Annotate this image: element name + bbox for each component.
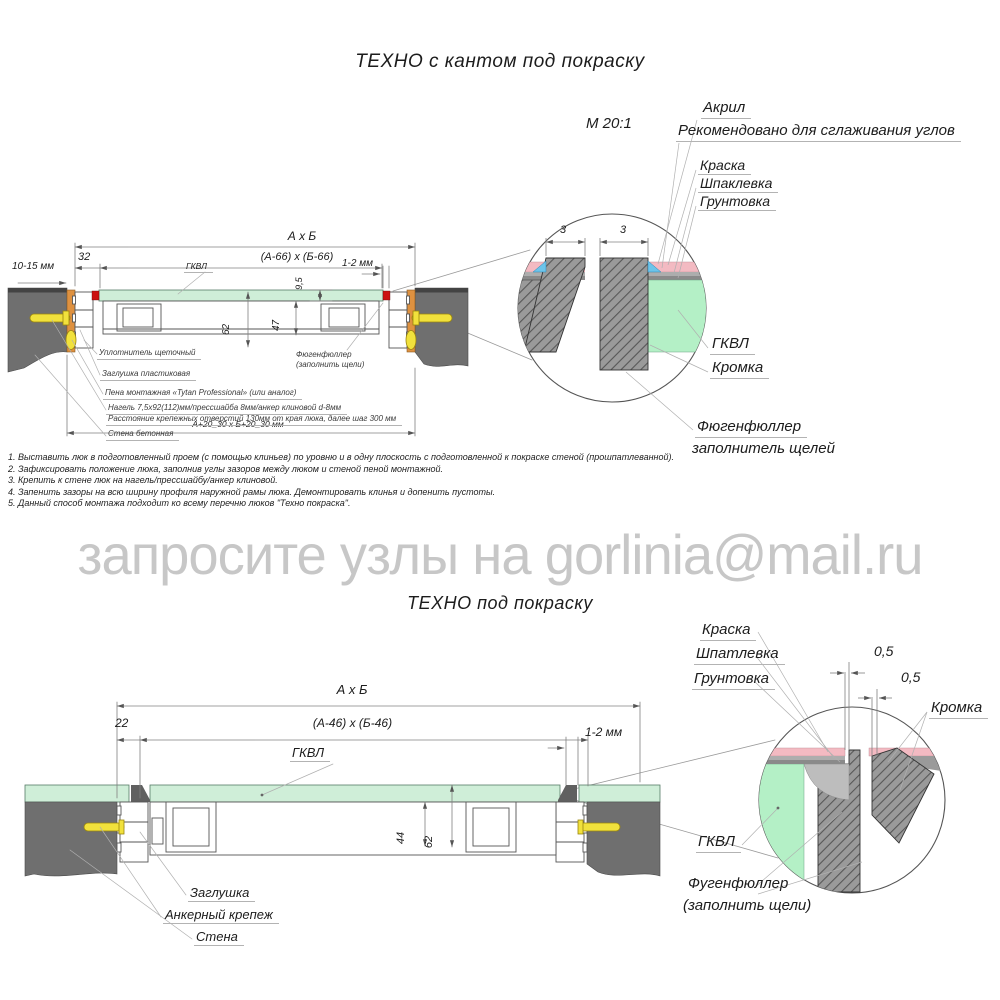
top-red-mark-left [92,291,99,300]
label-filler1-line1: Фюгенфюллер [695,419,807,438]
label-filler2-line1: Фугенфюллер [688,876,788,893]
dim-bottom-frame-h: 62 [423,836,435,848]
label-acrylic-note: Рекомендовано для сглаживания углов [676,123,961,142]
gkvl-leader-dot [261,794,264,797]
bottom-wall-left [25,802,117,876]
callout-filler-top-line1: Фюгенфюллер [296,351,352,360]
dim-top-inner: (А-66) х (Б-66) [237,251,357,263]
bottom-section-title: ТЕХНО под покраску [0,594,1000,614]
top-lid [103,301,379,334]
dim-top-slit: 1-2 мм [342,258,373,269]
dim-top-lid-h: 47 [271,320,282,331]
dim-bottom-inner: (А-46) х (Б-46) [285,717,420,730]
dim-top-frame-h: 62 [221,324,232,335]
detail1-scale-label: М 20:1 [586,116,632,133]
detail2-gkvl-green [758,764,804,890]
dim-detail2-gap1: 0,5 [874,644,893,659]
label-wall-bottom: Стена [194,930,244,946]
dim-top-overall: А х Б [252,230,352,243]
dim-bottom-lid-h: 44 [395,832,407,844]
label-acrylic: Акрил [701,100,751,119]
label-primer-top: Грунтовка [698,194,776,211]
callout-wall-top: Стена бетонная [106,430,179,441]
dim-top-panel-t: 9,5 [295,277,305,290]
label-putty-top: Шпаклевка [698,176,778,193]
label-gkvl-detail1: ГКВЛ [710,336,755,355]
label-paint-bottom: Краска [700,622,756,641]
label-paint-top: Краска [698,158,751,175]
detail1-gap-white [585,255,600,370]
installation-notes: 1. Выставить люк в подготовленный проем … [8,452,674,510]
dim-top-wall-gap: 10-15 мм [12,261,54,272]
dim-bottom-overall: А х Б [312,683,392,697]
detail2-primer-left [758,760,845,764]
note-1: 1. Выставить люк в подготовленный проем … [8,452,674,462]
label-filler1-line2: заполнитель щелей [692,441,835,458]
label-putty-bottom: Шпатлевка [694,646,785,665]
detail2-putty-left [758,756,845,760]
dim-detail1-gap-l: 3 [560,224,566,236]
bottom-wall-right [587,802,660,876]
top-red-mark-right [383,291,390,300]
dim-bottom-22: 22 [115,717,128,730]
bottom-lid [150,802,556,855]
dim-bottom-slit: 1-2 мм [585,726,622,739]
note-4: 4. Запенить зазоры на всю ширину профиля… [8,487,674,497]
top-wall-right [415,288,468,366]
top-detail-circle [517,120,712,430]
label-gkvl-detail2: ГКВЛ [696,834,741,853]
top-section-title: ТЕХНО с кантом под покраску [0,52,1000,73]
bottom-gap-left [131,785,150,802]
callout-dowel-spacing: Расстояние крепежных отверстий 130мм от … [106,415,402,426]
callout-brush-seal: Уплотнитель щеточный [97,349,201,360]
callout-filler-top-line2: (заполнить щели) [296,361,364,370]
top-gkvl-panel [99,290,383,301]
label-edge-detail2: Кромка [929,700,988,719]
note-3: 3. Крепить к стене люк на нагель/прессша… [8,475,674,485]
dim-top-32: 32 [78,251,90,263]
label-gkvl-bottom-main: ГКВЛ [290,746,330,762]
drawing-sheet: ТЕХНО с кантом под покраску М 20:1 Акрил… [0,0,1000,1000]
label-gkvl-top-small: ГКВЛ [184,262,213,273]
label-plug-bottom: Заглушка [188,886,255,902]
gkvl2-leader-dot [777,807,780,810]
detail1-lid-block [600,258,648,370]
note-5: 5. Данный способ монтажа подходит ко все… [8,498,674,508]
bottom-cross-section [25,702,778,939]
watermark-email: запросите узлы на gorlinia@mail.ru [15,522,985,587]
label-anchor-bottom: Анкерный крепеж [163,908,279,924]
note-2: 2. Зафиксировать положение люка, заполни… [8,464,674,474]
callout-plug-top: Заглушка пластиковая [100,370,196,381]
dim-detail1-gap-r: 3 [620,224,626,236]
dim-detail2-gap2: 0,5 [901,670,920,685]
bottom-gap-right [558,785,577,802]
label-filler2-line2: (заполнить щели) [683,898,811,915]
callout-foam: Пена монтажная «Tytan Professional» (или… [103,389,302,400]
label-primer-bottom: Грунтовка [692,671,775,690]
label-edge-detail1: Кромка [710,360,769,379]
